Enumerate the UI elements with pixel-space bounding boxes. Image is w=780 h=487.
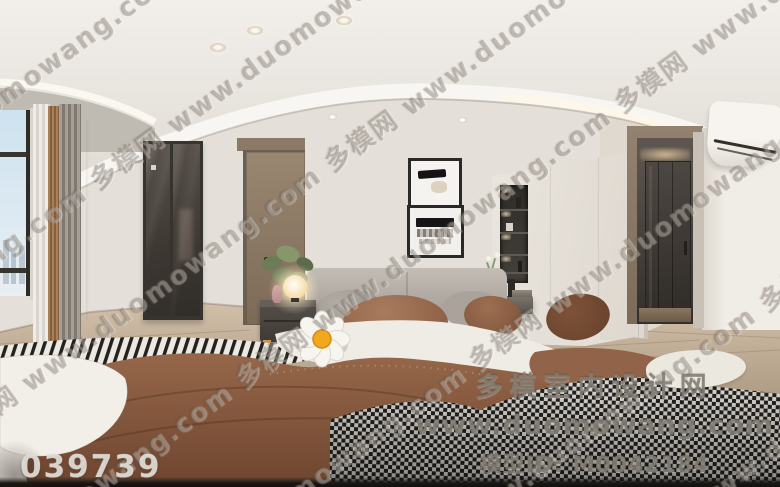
footer-model-id: 模型ID: M0042184	[480, 447, 710, 479]
daisy-pillow	[294, 311, 350, 367]
daisy-center	[313, 330, 331, 348]
footer-site-name: 多模室内设计网	[476, 365, 714, 404]
panorama-bedroom-scene: 多模网 www.duomowang.com 多模网 www.duomowang.…	[0, 0, 780, 487]
watermark-id: 039739	[20, 449, 161, 485]
watermark-footer: 多模室内设计网 www.duomowang.com 模型ID: M0042184	[415, 365, 774, 479]
footer-site-url: www.duomowang.com	[415, 410, 774, 441]
